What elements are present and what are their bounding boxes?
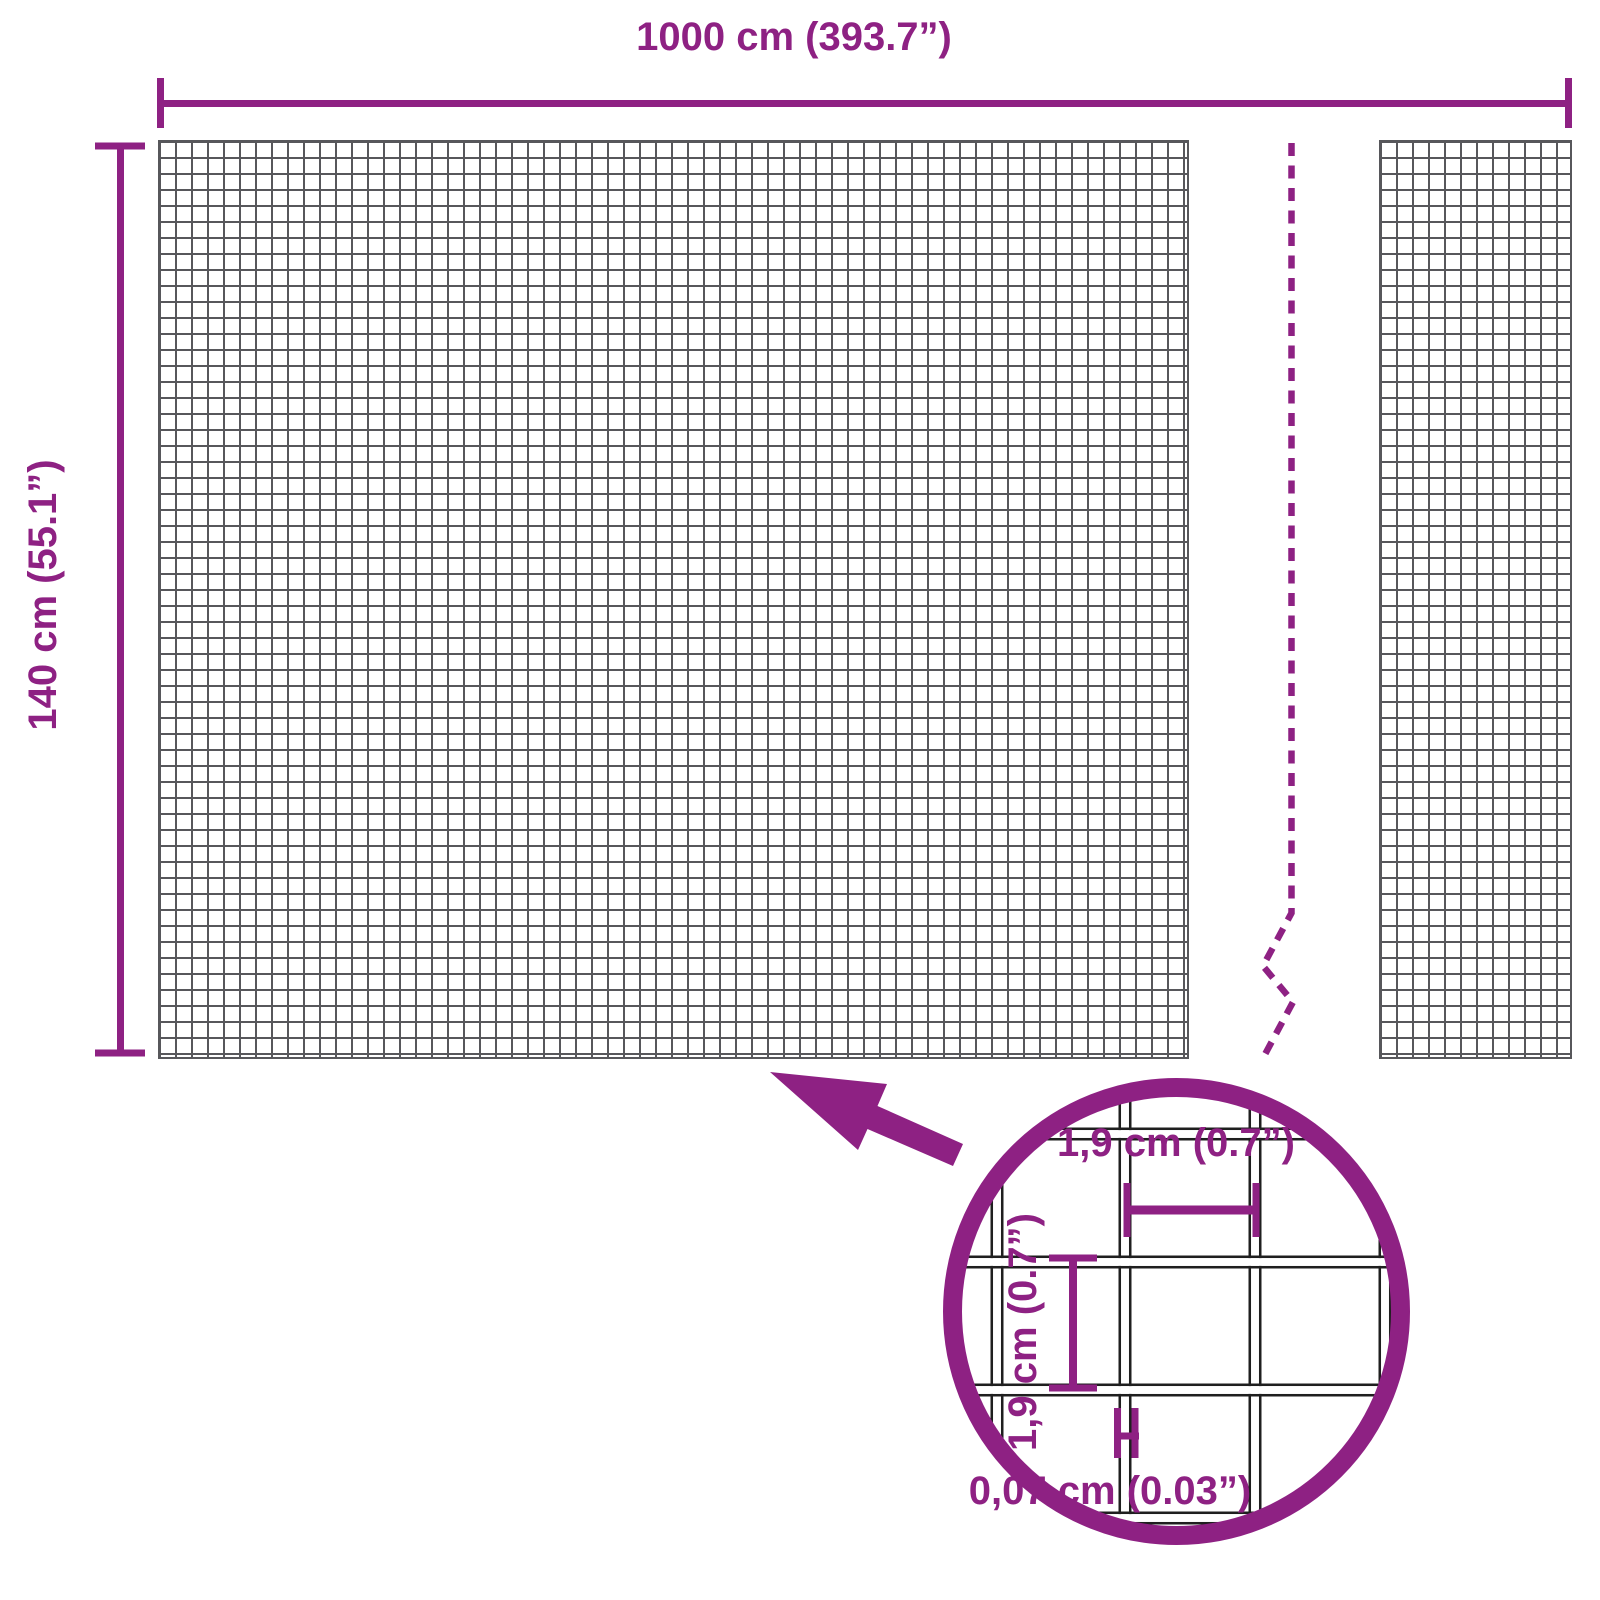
mesh-panel-right xyxy=(1380,141,1571,1058)
height-dimension-label: 140 cm (55.1”) xyxy=(21,459,65,730)
detail-height-label: 1,9 cm (0.7”) xyxy=(1001,1213,1045,1451)
detail-width-label: 1,9 cm (0.7”) xyxy=(1057,1121,1295,1165)
mesh-panel-left xyxy=(159,141,1188,1058)
mesh-panels xyxy=(159,141,1571,1060)
panel-break-dashed-line xyxy=(1262,143,1293,1060)
width-dimension-label: 1000 cm (393.7”) xyxy=(636,15,952,59)
zoom-pointer-arrow-icon xyxy=(770,1072,963,1166)
diagram-canvas: 1000 cm (393.7”) 140 cm (55.1”) xyxy=(0,0,1600,1600)
height-dimension: 140 cm (55.1”) xyxy=(21,143,145,1056)
product-dimension-diagram: 1000 cm (393.7”) 140 cm (55.1”) xyxy=(0,0,1600,1600)
mesh-detail-magnifier: 1,9 cm (0.7”) 1,9 cm (0.7”) 0,07 cm (0.0… xyxy=(945,1078,1410,1546)
width-dimension: 1000 cm (393.7”) xyxy=(160,15,1569,128)
